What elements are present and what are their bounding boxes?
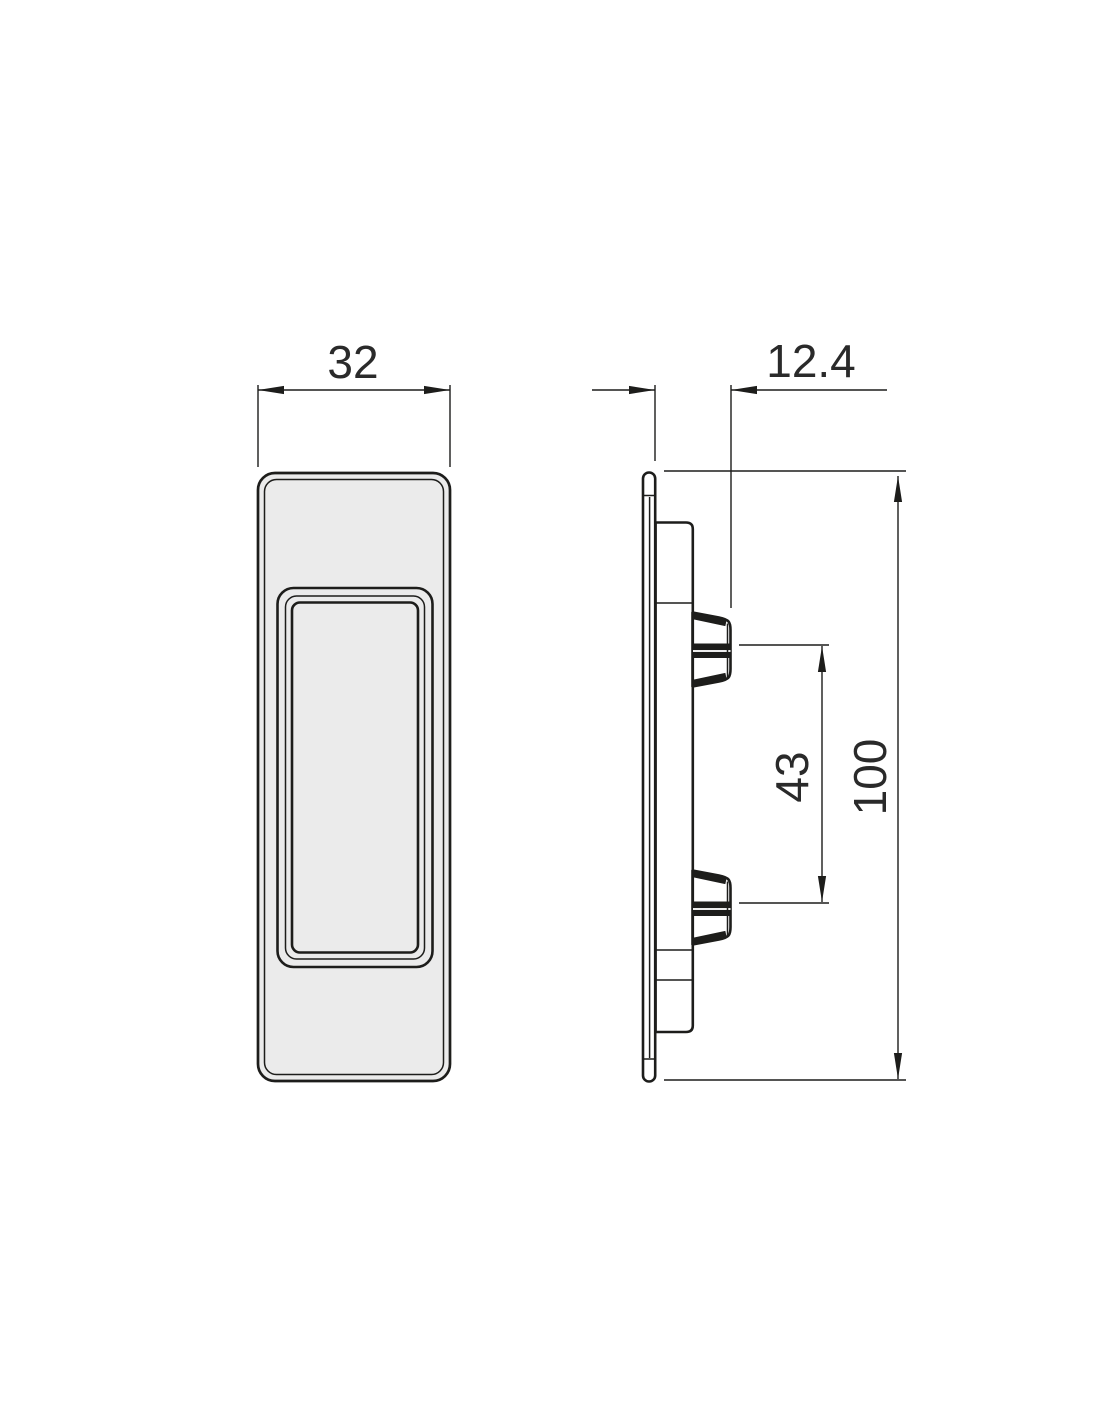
arrowhead-left [629,386,655,394]
front-view [258,473,450,1081]
side-view [643,473,731,1082]
clip-spacing-dimension-label: 43 [766,751,818,802]
width-dimension-label: 32 [327,336,378,388]
arrowhead-left [258,386,284,394]
arrowhead-right [731,386,757,394]
technical-drawing-canvas: 32 12.4 100 43 [0,0,1100,1422]
width-dimension: 32 [258,336,450,467]
lower-mounting-clip [693,871,731,945]
flush-pull-handle-drawing: 32 12.4 100 43 [0,0,1100,1422]
side-body [656,523,693,1033]
clip-spacing-dimension: 43 [739,645,829,903]
upper-mounting-clip [693,613,731,687]
arrowhead-down [894,1053,902,1079]
arrowhead-right [424,386,450,394]
arrowhead-up [894,476,902,502]
height-dimension-label: 100 [844,739,896,816]
depth-dimension-label: 12.4 [766,335,856,387]
arrowhead-down [818,876,826,902]
front-face-outline [258,473,450,1081]
arrowhead-up [818,646,826,672]
